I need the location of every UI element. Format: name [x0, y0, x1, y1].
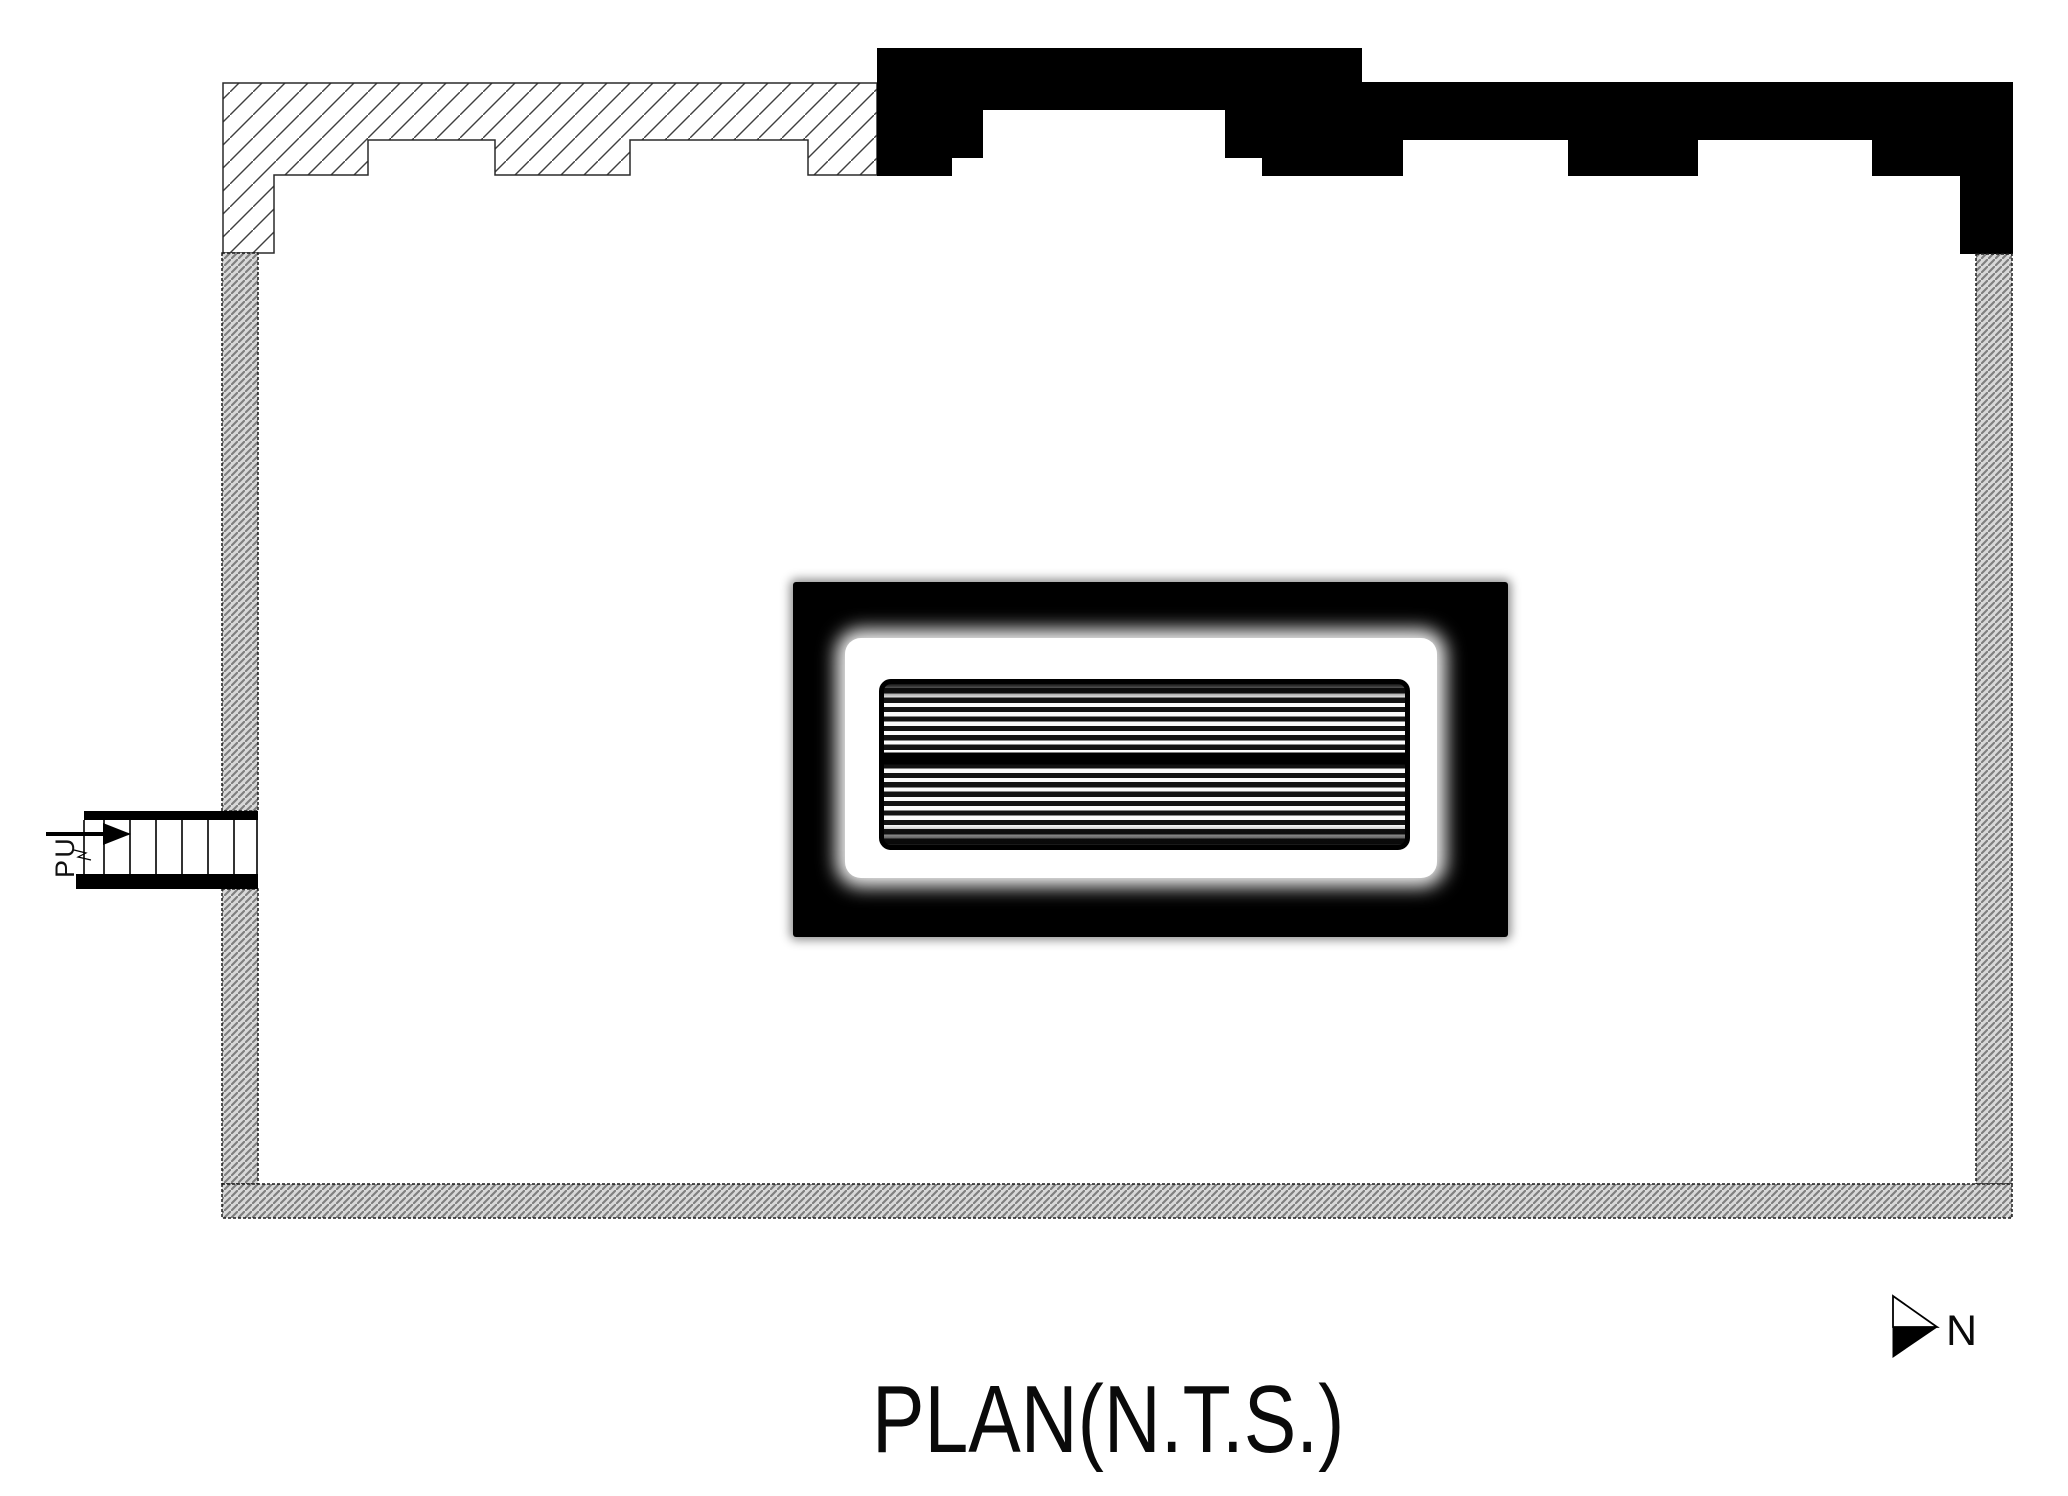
- north-label: N: [1946, 1310, 1977, 1353]
- stair-bottom-stringer: [76, 874, 258, 889]
- north-arrow-icon: [1893, 1296, 1937, 1357]
- floor-plan-canvas: UP N PLAN(N.T.S.): [0, 0, 2068, 1496]
- stair-top-stringer: [84, 811, 258, 820]
- top-wall-hatched: [223, 83, 877, 253]
- stair-up-label-char: P: [58, 854, 72, 884]
- left-wall-lower: [222, 889, 258, 1184]
- bottom-wall: [222, 1184, 2012, 1218]
- left-wall-upper: [222, 253, 258, 811]
- stair-up-label: UP: [50, 841, 80, 876]
- ceiling-feature-louver-grille: [879, 679, 1410, 850]
- plan-title: PLAN(N.T.S.): [872, 1372, 1344, 1468]
- top-wall-solid: [877, 48, 2013, 254]
- right-wall: [1976, 254, 2012, 1184]
